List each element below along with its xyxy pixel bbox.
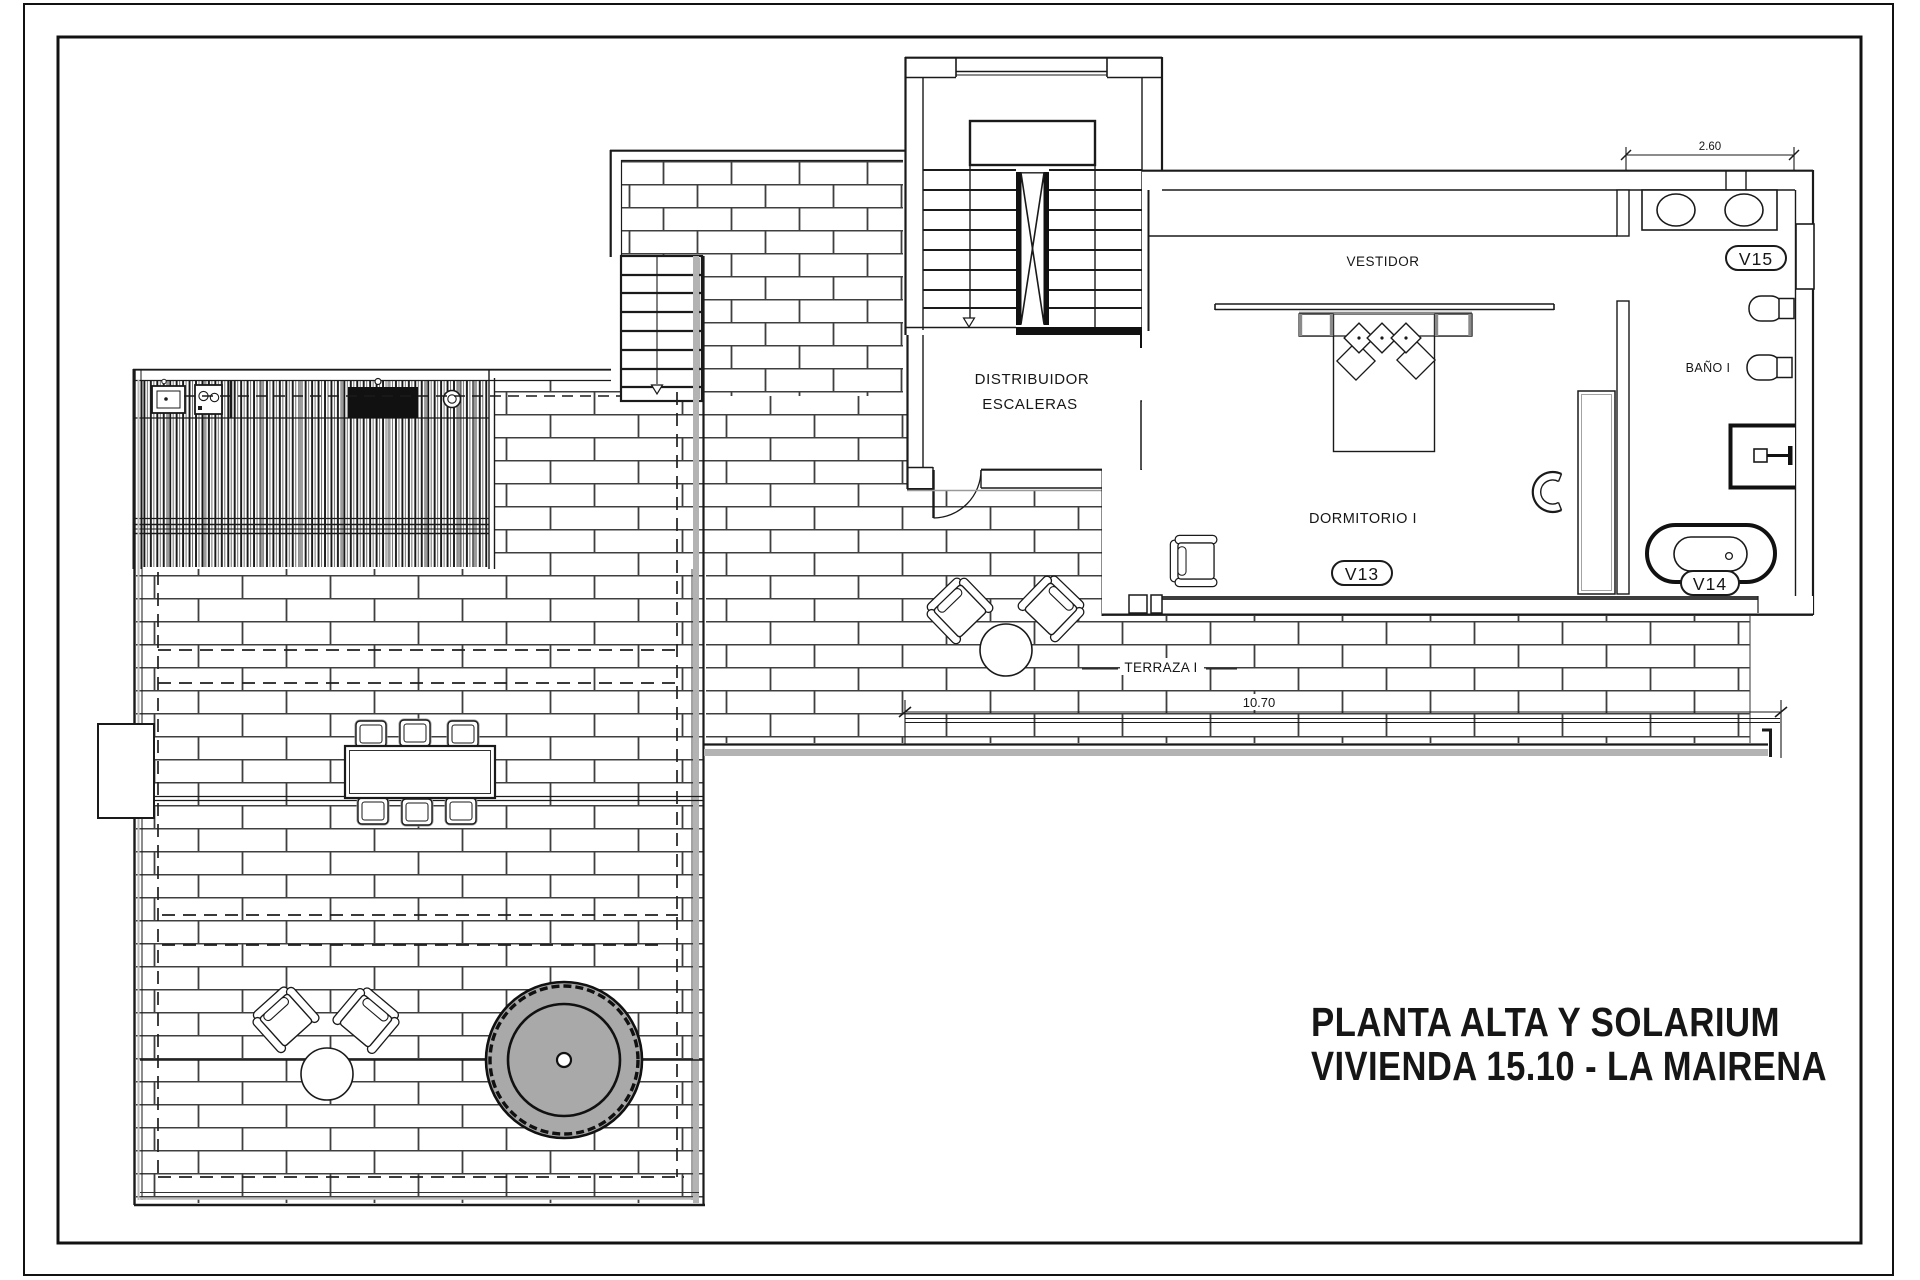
svg-text:V14: V14 bbox=[1693, 574, 1727, 594]
svg-text:VESTIDOR: VESTIDOR bbox=[1346, 254, 1419, 269]
svg-text:BAÑO I: BAÑO I bbox=[1686, 361, 1731, 375]
svg-text:V13: V13 bbox=[1345, 564, 1379, 584]
svg-text:DORMITORIO I: DORMITORIO I bbox=[1309, 511, 1417, 527]
svg-text:10.70: 10.70 bbox=[1243, 695, 1276, 710]
svg-text:2.60: 2.60 bbox=[1699, 141, 1721, 153]
svg-text:VIVIENDA 15.10 - LA MAIRENA: VIVIENDA 15.10 - LA MAIRENA bbox=[1311, 1043, 1827, 1089]
svg-text:TERRAZA I: TERRAZA I bbox=[1124, 660, 1197, 675]
svg-text:V15: V15 bbox=[1739, 249, 1773, 269]
svg-text:PLANTA ALTA Y SOLARIUM: PLANTA ALTA Y SOLARIUM bbox=[1311, 999, 1780, 1045]
svg-text:ESCALERAS: ESCALERAS bbox=[982, 396, 1077, 413]
svg-text:DISTRIBUIDOR: DISTRIBUIDOR bbox=[975, 371, 1090, 388]
